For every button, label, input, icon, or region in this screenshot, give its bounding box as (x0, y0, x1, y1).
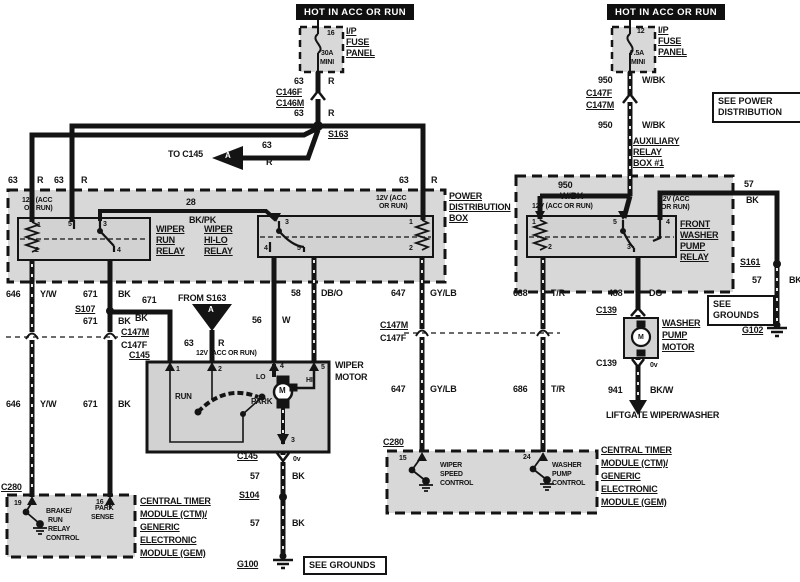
wire646-a-num: 646 (6, 290, 20, 299)
wire63-c-col: R (266, 158, 272, 167)
wiper-run-relay-1: WIPER (156, 225, 185, 234)
aux-relay-12v-b2: OR RUN) (661, 204, 690, 211)
wire671-c-num: 671 (83, 317, 97, 326)
aux-relay-pin4: 4 (666, 219, 670, 226)
wire57-a-col: BK (292, 472, 305, 481)
wire63-a-num: 63 (294, 77, 304, 86)
fuse-right-name-2: FUSE (658, 37, 681, 46)
conn-c147f-right: C147F (586, 89, 612, 98)
aux-relay-box-1: AUXILIARY (633, 137, 679, 146)
conn-c280-mid: C280 (383, 438, 404, 447)
fuse-right-type: MINI (631, 59, 645, 66)
wiper-motor-2: MOTOR (335, 373, 367, 382)
wire646-a-col: Y/W (40, 290, 56, 299)
hilo-relay-pin3: 3 (285, 219, 289, 226)
ctm-left-name-1: CENTRAL TIMER (140, 497, 211, 506)
washer-relay-1: FRONT (680, 220, 710, 229)
wire647-b-col: GY/LB (430, 385, 457, 394)
washer-relay-2: WASHER (680, 231, 718, 240)
ctm-mid-name-2: MODULE (CTM)/ (601, 459, 668, 468)
splice-s104: S104 (239, 491, 259, 500)
motor-lo: LO (256, 374, 265, 381)
run-relay-12v-1: 12V (ACC (22, 197, 52, 204)
fuse-left-name-1: I/P (346, 27, 356, 36)
wire28-num: 28 (186, 198, 196, 207)
hot-in-acc-banner-right: HOT IN ACC OR RUN (607, 4, 725, 20)
hot-in-acc-banner-left: HOT IN ACC OR RUN (296, 4, 414, 20)
wire950-a-num: 950 (598, 76, 612, 85)
splice-s163-dot (313, 121, 323, 131)
wire63-d-col: R (37, 176, 43, 185)
brake-run-relay-1: BRAKE/ (46, 508, 72, 515)
motor-12v-note: 12V (ACC OR RUN) (196, 350, 257, 357)
motor-m-letter: M (279, 387, 285, 395)
aux-relay-box-2: RELAY (633, 148, 662, 157)
conn-c147f-left: C147F (121, 341, 147, 350)
wire646-b-num: 646 (6, 400, 20, 409)
wire57-c-num: 57 (744, 180, 754, 189)
aux-relay-pin5: 5 (613, 219, 617, 226)
wire686-num: 686 (513, 385, 527, 394)
wire63-c-num: 63 (262, 141, 272, 150)
wire57-b-num: 57 (250, 519, 260, 528)
fuse-right-pin: 12 (637, 28, 644, 35)
wiper-hilo-relay-1: WIPER (204, 225, 233, 234)
fuse-left-pin: 16 (327, 30, 334, 37)
ctm-mid-name-5: MODULE (GEM) (601, 498, 667, 507)
wire63-g-num: 63 (184, 339, 194, 348)
fuse-right-rating: 7.5A (630, 50, 644, 57)
run-relay-pin4: 4 (117, 247, 121, 254)
ground-g100-symbol (273, 560, 293, 568)
wire63-g-col: R (218, 339, 224, 348)
aux-relay-12v-b1: 12V (ACC (659, 196, 689, 203)
ctm-gem-box-left (7, 495, 135, 557)
wire647-a-col: GY/LB (430, 289, 457, 298)
splice-s107: S107 (75, 305, 95, 314)
see-power-distribution-note: SEE POWER DISTRIBUTION (712, 92, 800, 123)
wire488-num: 488 (608, 289, 622, 298)
park-sense-2: SENSE (91, 514, 114, 521)
aux-relay-pin2: 2 (548, 244, 552, 251)
splice-s163: S163 (328, 130, 348, 139)
ground-g100: G100 (237, 560, 258, 569)
motor-pin5: 5 (321, 364, 325, 371)
ctm-mid-pin15: 15 (399, 455, 406, 462)
ground-g102: G102 (742, 326, 763, 335)
ctm-mid-pin24: 24 (523, 454, 530, 461)
run-relay-pin1: 1 (37, 222, 41, 229)
wire58-col: DB/O (321, 289, 343, 298)
wire63-a-col: R (328, 77, 334, 86)
motor-run: RUN (175, 393, 192, 401)
wire57-d-col: BK (789, 276, 800, 285)
splice-s107-dot (106, 307, 114, 315)
washer-motor-m-letter: M (638, 334, 644, 341)
conn-c147f-mid: C147F (380, 334, 406, 343)
see-grounds-note-right: SEE GROUNDS (707, 295, 775, 326)
fuse-left-name-2: FUSE (346, 38, 369, 47)
wire58-num: 58 (291, 289, 301, 298)
motor-pin1: 1 (176, 366, 180, 373)
wire950-b-col: W/BK (642, 121, 665, 130)
run-relay-12v-2: OR RUN) (24, 205, 53, 212)
hilo-relay-pin2: 2 (409, 245, 413, 252)
from-s163-note: FROM S163 (178, 294, 226, 303)
wire671-b-num: 671 (142, 296, 156, 305)
wiper-hilo-relay-2: HI-LO (204, 236, 228, 245)
motor-pin2: 2 (218, 366, 222, 373)
park-sense-1: PARK (95, 505, 114, 512)
conn-c146f: C146F (276, 88, 302, 97)
hilo-relay-12v-2: OR RUN) (379, 203, 408, 210)
power-dist-box-1: POWER (449, 192, 482, 201)
wiring-diagram: HOT IN ACC OR RUN HOT IN ACC OR RUN SEE … (0, 0, 800, 582)
hilo-relay-pin4: 4 (264, 245, 268, 252)
washer-pump-motor-1: WASHER (662, 319, 700, 328)
wire488-col: DG (649, 289, 662, 298)
wiper-motor-1: WIPER (335, 361, 364, 370)
wire671-a-num: 671 (83, 290, 97, 299)
washer-pump-control-1: WASHER (552, 462, 582, 469)
brake-run-relay-3: RELAY (48, 526, 70, 533)
motor-pin3: 3 (291, 437, 295, 444)
washer-pump-control-3: CONTROL (552, 480, 585, 487)
hilo-relay-12v-1: 12V (ACC (376, 195, 406, 202)
wire950-c-num: 950 (558, 181, 572, 190)
wiper-speed-control-1: WIPER (440, 462, 462, 469)
wire941-num: 941 (608, 386, 622, 395)
power-dist-box-2: DISTRIBUTION (449, 203, 511, 212)
triangle-a-down-letter: A (208, 306, 214, 314)
power-dist-box-3: BOX (449, 214, 468, 223)
splice-s104-dot (279, 493, 287, 501)
ctm-left-name-3: GENERIC (140, 523, 180, 532)
wire671-d-col: BK (118, 400, 131, 409)
fuse-left-type: MINI (320, 59, 334, 66)
wire950-c-col: W/BK (560, 192, 583, 201)
conn-c147m-left: C147M (121, 328, 149, 337)
wiper-speed-control-2: SPEED (440, 471, 463, 478)
run-relay-pin5: 5 (68, 221, 72, 228)
ctm-mid-name-1: CENTRAL TIMER (601, 446, 672, 455)
wire647-b-num: 647 (391, 385, 405, 394)
conn-c147m-right: C147M (586, 101, 614, 110)
wire688-col: T/R (551, 289, 565, 298)
wire57-b-col: BK (292, 519, 305, 528)
ctm-left-pin19: 19 (14, 500, 21, 507)
triangle-a-left-letter: A (225, 152, 231, 160)
motor-park: PARK (251, 398, 272, 406)
motor-hi: HI (306, 377, 313, 384)
motor-0v: 0v (293, 456, 300, 463)
wiper-run-relay-3: RELAY (156, 247, 185, 256)
wire63-d-num: 63 (8, 176, 18, 185)
splice-s161: S161 (740, 258, 760, 267)
wire671-d-num: 671 (83, 400, 97, 409)
washer-relay-4: RELAY (680, 253, 709, 262)
ctm-left-name-5: MODULE (GEM) (140, 549, 206, 558)
conn-c139-bottom: C139 (596, 359, 617, 368)
see-grounds-note-bottom: SEE GROUNDS (303, 556, 387, 575)
wire950-b-num: 950 (598, 121, 612, 130)
hilo-relay-pin5: 5 (297, 245, 301, 252)
wire941-col: BK/W (650, 386, 673, 395)
washer-pump-motor-3: MOTOR (662, 343, 694, 352)
wire63-f-num: 63 (399, 176, 409, 185)
fuse-left-name-3: PANEL (346, 49, 375, 58)
fuse-right-name-3: PANEL (658, 48, 687, 57)
wire950-a-col: W/BK (642, 76, 665, 85)
ctm-mid-name-4: ELECTRONIC (601, 485, 658, 494)
ctm-left-name-2: MODULE (CTM)/ (140, 510, 207, 519)
motor-pin4: 4 (280, 363, 284, 370)
washer-relay-3: PUMP (680, 242, 705, 251)
conn-c147m-mid: C147M (380, 321, 408, 330)
washer-pump-control-2: PUMP (552, 471, 571, 478)
wire57-c-col: BK (746, 196, 759, 205)
run-relay-pin2: 2 (35, 247, 39, 254)
wire63-e-num: 63 (54, 176, 64, 185)
brake-run-relay-4: CONTROL (46, 535, 79, 542)
washer-pump-motor-2: PUMP (662, 331, 687, 340)
wire671-a-col: BK (118, 290, 131, 299)
ctm-left-name-4: ELECTRONIC (140, 536, 197, 545)
aux-relay-12v-a: 12V (ACC OR RUN) (532, 203, 593, 210)
splice-s161-dot (773, 260, 781, 268)
aux-relay-pin3: 3 (627, 244, 631, 251)
liftgate-note: LIFTGATE WIPER/WASHER (606, 411, 719, 420)
ground-g102-symbol (767, 328, 787, 336)
wiper-speed-control-3: CONTROL (440, 480, 473, 487)
wiper-hilo-relay-3: RELAY (204, 247, 233, 256)
conn-c145-left: C145 (129, 351, 150, 360)
washer-0v: 0v (650, 362, 657, 369)
wire63-b-num: 63 (294, 109, 304, 118)
wire63-f-col: R (431, 176, 437, 185)
wire647-a-num: 647 (391, 289, 405, 298)
to-c145-note: TO C145 (168, 150, 203, 159)
wire57-a-num: 57 (250, 472, 260, 481)
wire671-b-col: BK (135, 314, 148, 323)
conn-c145-bottom: C145 (237, 452, 258, 461)
wire63-e-col: R (81, 176, 87, 185)
fuse-right-name-1: I/P (658, 26, 668, 35)
conn-c139-top: C139 (596, 306, 617, 315)
wire56-col: W (282, 316, 290, 325)
wire63-b-col: R (328, 109, 334, 118)
brake-run-relay-2: RUN (48, 517, 63, 524)
aux-relay-pin1: 1 (532, 219, 536, 226)
aux-relay-box-3: BOX #1 (633, 159, 664, 168)
conn-c280-left: C280 (1, 483, 22, 492)
wire688-num: 688 (513, 289, 527, 298)
fuse-left-rating: 30A (321, 50, 333, 57)
wiper-run-relay-2: RUN (156, 236, 175, 245)
ground-symbols (273, 322, 787, 568)
motor-brush-bottom (277, 399, 289, 408)
ctm-mid-name-3: GENERIC (601, 472, 641, 481)
wire646-b-col: Y/W (40, 400, 56, 409)
wire686-col: T/R (551, 385, 565, 394)
wiper-motor-rect (147, 362, 329, 452)
wire57-d-num: 57 (752, 276, 762, 285)
hilo-relay-pin1: 1 (409, 219, 413, 226)
conn-c146m: C146M (276, 99, 304, 108)
wire671-c-col: BK (118, 317, 131, 326)
run-relay-pin3: 3 (103, 221, 107, 228)
connector-c147-left-bumps (26, 334, 116, 340)
wire56-num: 56 (252, 316, 262, 325)
